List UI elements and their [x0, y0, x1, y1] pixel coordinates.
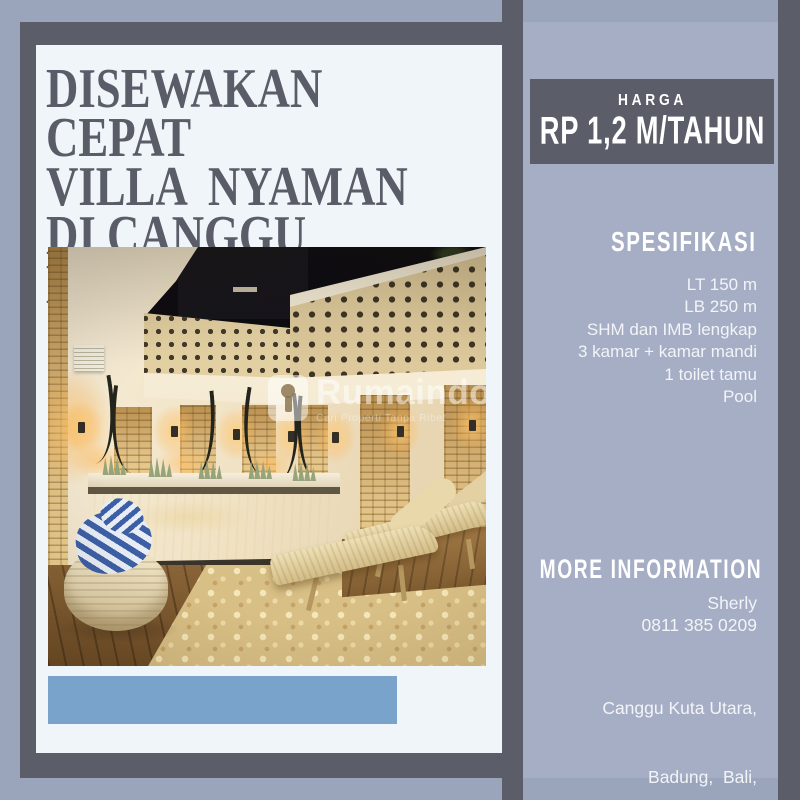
- spec-item: Pool: [578, 386, 757, 408]
- watermark-brand: Rumaindo: [316, 375, 486, 411]
- watermark-tagline: Cari Properti Tanpa Ribet: [316, 412, 486, 424]
- spec-heading-text: SPESIFIKASI: [611, 227, 757, 259]
- contact-phone: 0811 385 0209: [602, 615, 757, 637]
- contact-block: Sherly 0811 385 0209 Canggu Kuta Utara, …: [602, 593, 757, 800]
- villa-photo: Rumaindo Cari Properti Tanpa Ribet: [48, 247, 486, 666]
- watermark-text: Rumaindo Cari Properti Tanpa Ribet: [316, 375, 486, 424]
- price-value: RP 1,2 M/TAHUN: [539, 109, 764, 154]
- contact-heading-text: MORE INFORMATION: [539, 554, 762, 585]
- building-silhouette: [178, 247, 308, 319]
- spec-item: LB 250 m: [578, 296, 757, 318]
- spec-item: 1 toilet tamu: [578, 364, 757, 386]
- spec-item: SHM dan IMB lengkap: [578, 319, 757, 341]
- pool-coping: [88, 487, 340, 494]
- content-card: DISEWAKAN CEPAT VILLA NYAMAN DI CANGGU B…: [36, 45, 502, 753]
- price-label: HARGA: [618, 92, 687, 110]
- address-line: Badung, Bali,: [602, 766, 757, 789]
- wall-lamp: [332, 432, 339, 443]
- price-box: HARGA RP 1,2 M/TAHUN: [530, 79, 774, 164]
- divider-column: [502, 0, 523, 800]
- address-line: Canggu Kuta Utara,: [602, 697, 757, 720]
- spec-heading: SPESIFIKASI: [579, 228, 757, 257]
- contact-heading: MORE INFORMATION: [484, 556, 762, 584]
- title-line-1: DISEWAKAN CEPAT: [46, 65, 411, 163]
- spec-item: 3 kamar + kamar mandi: [578, 341, 757, 363]
- lit-window: [233, 287, 257, 292]
- rumaindo-key-icon: [268, 375, 308, 421]
- contact-name: Sherly: [602, 593, 757, 615]
- sidebar-panel: HARGA RP 1,2 M/TAHUN SPESIFIKASI LT 150 …: [523, 22, 778, 778]
- spec-list: LT 150 m LB 250 m SHM dan IMB lengkap 3 …: [578, 274, 757, 408]
- spec-item: LT 150 m: [578, 274, 757, 296]
- poster-canvas: DISEWAKAN CEPAT VILLA NYAMAN DI CANGGU B…: [0, 0, 800, 800]
- right-edge-column: [778, 0, 800, 800]
- wall-lamp: [171, 426, 178, 437]
- watermark: Rumaindo Cari Properti Tanpa Ribet: [268, 375, 486, 424]
- contact-address: Canggu Kuta Utara, Badung, Bali,: [602, 651, 757, 800]
- wall-lamp: [397, 426, 404, 437]
- accent-bar: [48, 676, 397, 724]
- wall-lamp: [233, 429, 240, 440]
- keyhole-stem: [285, 396, 292, 412]
